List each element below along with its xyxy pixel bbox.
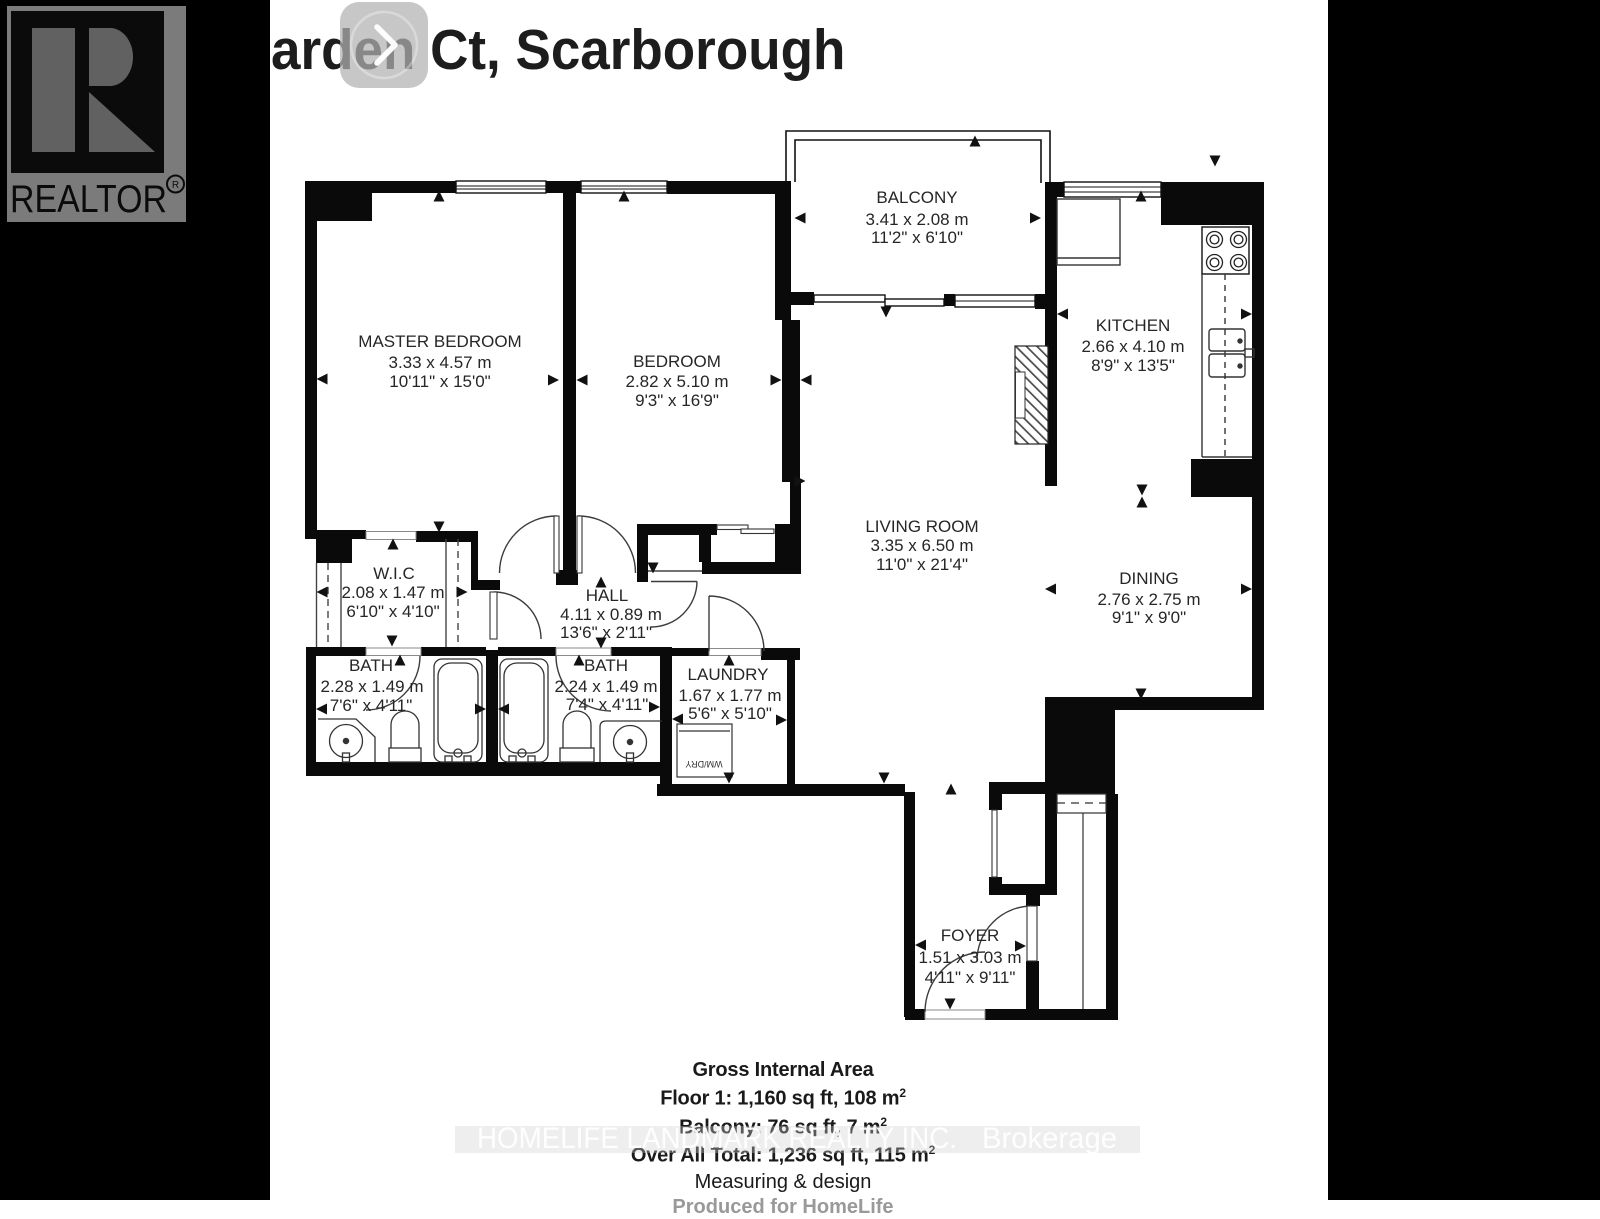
- svg-text:Brokerage: Brokerage: [982, 1122, 1117, 1155]
- svg-text:HOMELIFE LANDMARK REALTY INC.: HOMELIFE LANDMARK REALTY INC.: [477, 1122, 957, 1155]
